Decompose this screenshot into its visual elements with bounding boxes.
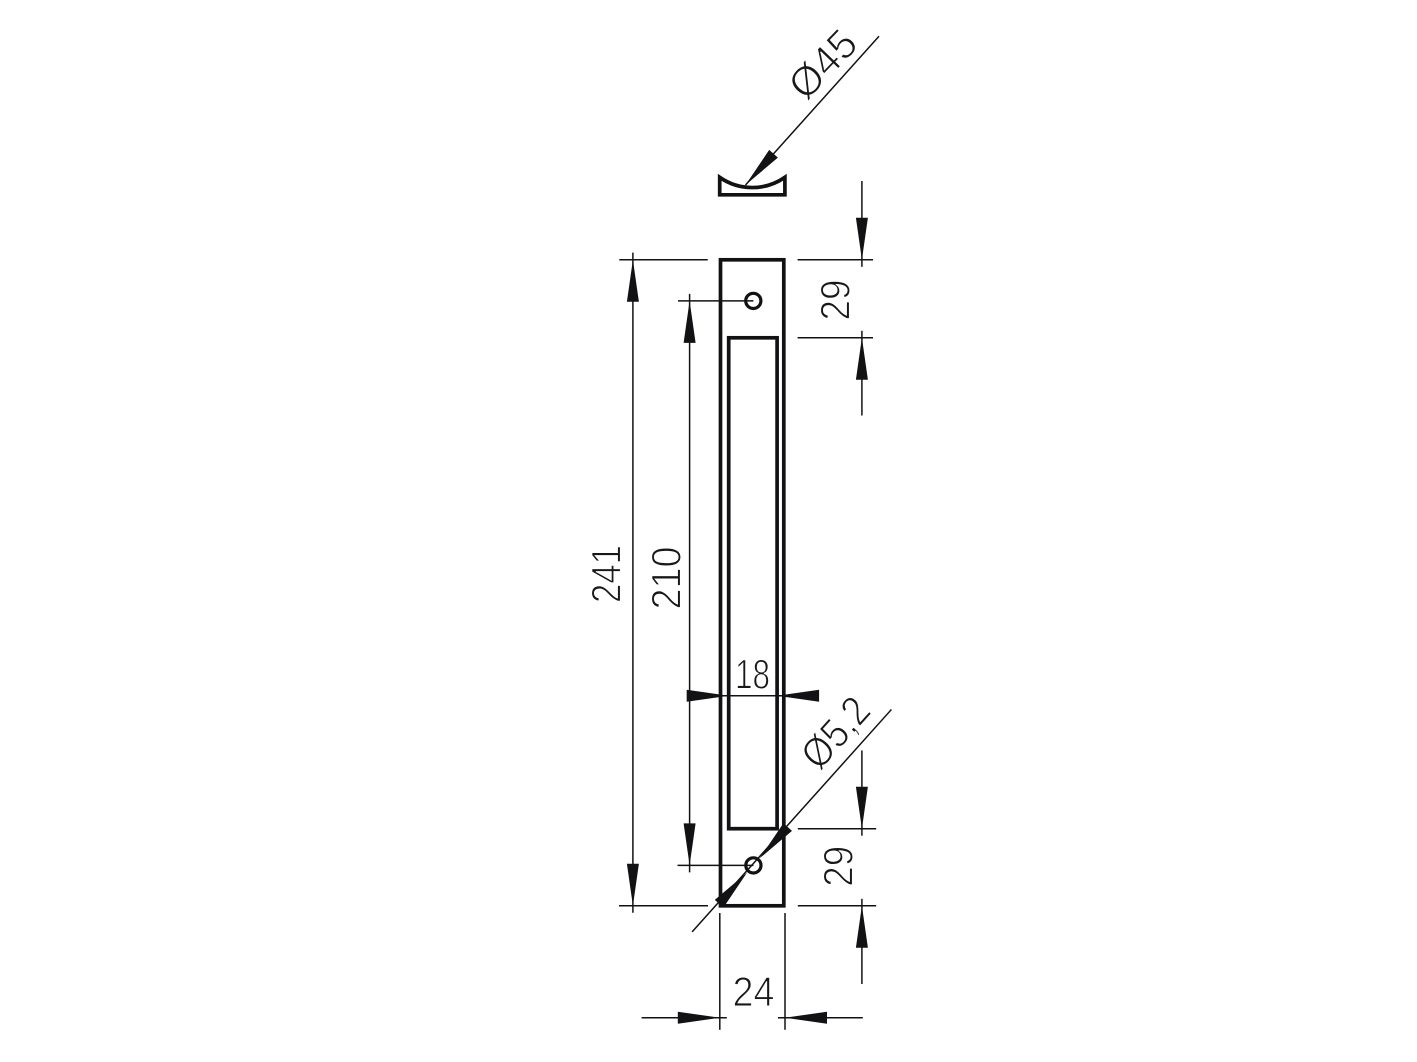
svg-text:29: 29 xyxy=(812,280,859,321)
svg-text:24: 24 xyxy=(733,968,775,1015)
svg-text:Ø45: Ø45 xyxy=(779,20,867,109)
svg-text:241: 241 xyxy=(583,545,630,603)
svg-text:18: 18 xyxy=(735,651,770,698)
svg-text:29: 29 xyxy=(814,846,861,887)
svg-text:Ø5,2: Ø5,2 xyxy=(791,687,879,778)
svg-text:210: 210 xyxy=(643,547,690,610)
